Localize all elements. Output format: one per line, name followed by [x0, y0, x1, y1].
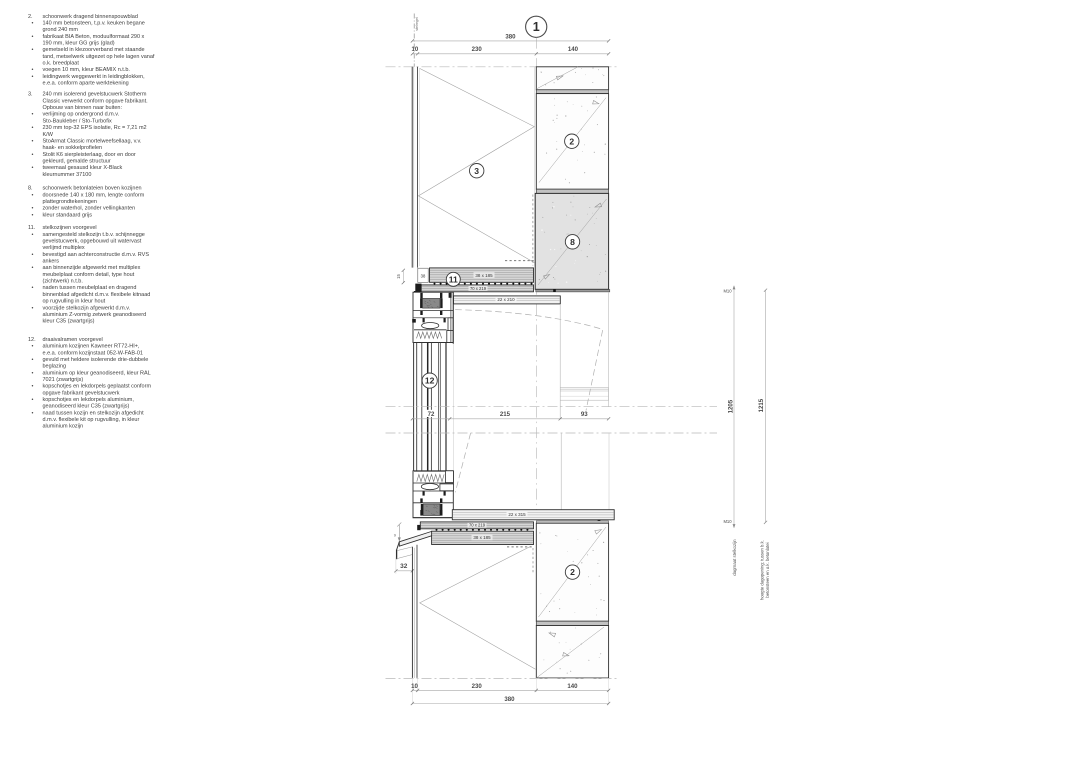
svg-text:•: •	[32, 206, 34, 212]
svg-text:10: 10	[411, 683, 418, 690]
svg-text:verlijming op ondergrond d.m.v: verlijming op ondergrond d.m.v.	[43, 112, 120, 118]
svg-text:d.m.v. flexibele kit op rugvul: d.m.v. flexibele kit op rugvulling, in k…	[43, 417, 140, 423]
svg-text:•: •	[32, 285, 34, 291]
svg-text:aan binnenzijde afgewerkt met: aan binnenzijde afgewerkt met multiplex	[43, 265, 141, 271]
svg-text:•: •	[32, 252, 34, 258]
svg-text:70 x 219: 70 x 219	[470, 286, 487, 291]
svg-text:Stolit K6 sierpleisterlaag, do: Stolit K6 sierpleisterlaag, door en door	[43, 152, 136, 158]
svg-text:15: 15	[396, 274, 401, 279]
svg-text:stelkozijnen voorgevel: stelkozijnen voorgevel	[43, 225, 97, 231]
svg-text:•: •	[32, 232, 34, 238]
svg-text:schoonwerk betonlateien boven: schoonwerk betonlateien boven kozijnen	[43, 186, 142, 192]
svg-text:32: 32	[400, 563, 408, 570]
svg-text:binnenblad afgedicht d.m.v. fl: binnenblad afgedicht d.m.v. flexibele ki…	[43, 292, 151, 298]
svg-text:•: •	[32, 384, 34, 390]
svg-text:1: 1	[533, 20, 540, 34]
svg-text:aluminium op kleur geanodiseer: aluminium op kleur geanodiseerd, kleur R…	[43, 370, 151, 376]
svg-text:fabrikaat BIA Beton, moduulfor: fabrikaat BIA Beton, moduulformaat 290 x	[43, 34, 145, 40]
svg-text:8.: 8.	[28, 186, 33, 192]
svg-text:kleur C35 (zwartgrijs): kleur C35 (zwartgrijs)	[43, 319, 95, 325]
svg-text:380: 380	[504, 696, 515, 703]
svg-text:230: 230	[472, 683, 483, 690]
svg-text:dagmaat stelkozijn: dagmaat stelkozijn	[732, 539, 737, 576]
svg-text:gemetseld in klezoorverband me: gemetseld in klezoorverband met staande	[43, 47, 145, 53]
svg-text:•: •	[32, 74, 34, 80]
svg-text:kleurnummer 37100: kleurnummer 37100	[43, 172, 92, 178]
svg-text:haak- en sokkelprofielen: haak- en sokkelprofielen	[43, 145, 103, 151]
svg-text:•: •	[32, 305, 34, 311]
svg-text:geanodiseerd kleur C35 (zwartg: geanodiseerd kleur C35 (zwartgrijs)	[43, 404, 130, 410]
svg-text:2: 2	[570, 567, 575, 577]
svg-text:1215: 1215	[758, 398, 765, 412]
svg-text:K/W: K/W	[43, 132, 54, 138]
svg-text:kopschotjes en lekdorpels gepl: kopschotjes en lekdorpels geplaatst conf…	[43, 384, 152, 390]
svg-text:•: •	[32, 265, 34, 271]
svg-text:stelregel: stelregel	[415, 17, 419, 31]
svg-text:opgave fabrikant gevelstucwerk: opgave fabrikant gevelstucwerk	[43, 390, 120, 396]
svg-text:Sto-Baukleber / Sto-Turbofix: Sto-Baukleber / Sto-Turbofix	[43, 118, 112, 124]
svg-text:22 x 315: 22 x 315	[508, 512, 526, 517]
svg-text:70 x 219: 70 x 219	[469, 523, 486, 528]
svg-text:gevuld met heldere isolerende: gevuld met heldere isolerende drie-dubbe…	[43, 357, 149, 363]
svg-text:•: •	[32, 212, 34, 218]
svg-text:aluminium kozijnen Kawneer RT7: aluminium kozijnen Kawneer RT72-HI+,	[43, 344, 140, 350]
svg-text:12.: 12.	[28, 337, 36, 343]
svg-text:•: •	[32, 47, 34, 53]
svg-text:7021 (zwartgrijs): 7021 (zwartgrijs)	[43, 377, 84, 383]
svg-text:8: 8	[570, 237, 575, 247]
svg-text:38 x 185: 38 x 185	[473, 535, 491, 540]
svg-text:11: 11	[449, 274, 458, 284]
svg-text:e.e.a. conform aparte werkteke: e.e.a. conform aparte werktekening	[43, 81, 129, 87]
svg-text:•: •	[32, 370, 34, 376]
svg-text:72: 72	[428, 411, 435, 418]
svg-text:2: 2	[569, 136, 574, 146]
svg-text:•: •	[32, 20, 34, 26]
svg-text:verlijmd multiplex: verlijmd multiplex	[43, 245, 85, 251]
svg-text:M10: M10	[723, 519, 732, 524]
svg-text:140 mm betonsteen, t.p.v. keuk: 140 mm betonsteen, t.p.v. keuken begane	[43, 20, 145, 26]
svg-text:gevelstucwerk, opgebouwd uit w: gevelstucwerk, opgebouwd uit watervast	[43, 238, 142, 244]
svg-text:•: •	[32, 397, 34, 403]
svg-text:215: 215	[500, 411, 511, 418]
svg-text:38 x 185: 38 x 185	[475, 273, 493, 278]
svg-text:•: •	[32, 165, 34, 171]
svg-text:leidingwerk weggewerkt in leid: leidingwerk weggewerkt in leidingblokken…	[43, 74, 146, 80]
svg-text:•: •	[32, 34, 34, 40]
svg-text:Opbouw van binnen naar buiten:: Opbouw van binnen naar buiten:	[43, 105, 123, 111]
svg-text:3: 3	[474, 166, 479, 176]
svg-text:11.: 11.	[28, 225, 36, 231]
svg-text:aluminium Z-vormig zetwerk gea: aluminium Z-vormig zetwerk geanodiseerd	[43, 312, 147, 318]
svg-text:zonder waterhol, zonder vellin: zonder waterhol, zonder vellingkanten	[43, 206, 136, 212]
svg-text:beglazing: beglazing	[43, 364, 67, 370]
svg-text:plattegrondtekeningen: plattegrondtekeningen	[43, 199, 97, 205]
svg-text:tand, metselwerk uitgezet op h: tand, metselwerk uitgezet op hele lagen …	[43, 54, 155, 60]
svg-text:2.: 2.	[28, 14, 33, 20]
svg-text:140: 140	[568, 46, 579, 53]
svg-text:380: 380	[505, 33, 516, 40]
svg-text:•: •	[32, 67, 34, 73]
svg-text:3.: 3.	[28, 92, 33, 98]
svg-text:schoonwerk dragend binnenspouw: schoonwerk dragend binnenspouwblad	[43, 14, 138, 20]
svg-text:kleur standaard grijs: kleur standaard grijs	[43, 212, 93, 218]
svg-text:kopschotjes en lekdorpels alum: kopschotjes en lekdorpels aluminium,	[43, 397, 135, 403]
svg-text:•: •	[32, 192, 34, 198]
svg-text:voorzijde stelkozijn afgewerkt: voorzijde stelkozijn afgewerkt d.m.v.	[43, 305, 131, 311]
svg-text:voegen 10 mm, kleur BEAMIX n.t: voegen 10 mm, kleur BEAMIX n.t.b.	[43, 67, 131, 73]
svg-text:op rugvulling in kleur hout: op rugvulling in kleur hout	[43, 299, 106, 305]
svg-text:draaivalramen voorgevel: draaivalramen voorgevel	[43, 337, 103, 343]
svg-text:aluminium kozijn: aluminium kozijn	[43, 424, 84, 430]
svg-text:190 mm, kleur GG grijs (glad): 190 mm, kleur GG grijs (glad)	[43, 41, 115, 47]
svg-text:93: 93	[581, 411, 588, 418]
svg-text:meubelplaat conform detail, ty: meubelplaat conform detail, type hout	[43, 272, 135, 278]
svg-text:gekleurd, gemalde structuur: gekleurd, gemalde structuur	[43, 159, 111, 165]
svg-text:samengesteld stelkozijn t.b.v.: samengesteld stelkozijn t.b.v. schijnneg…	[43, 232, 145, 238]
svg-text:•: •	[32, 357, 34, 363]
svg-text:e.e.a. conform kozijnstaat 052: e.e.a. conform kozijnstaat 052-W-FAB-01	[43, 350, 143, 356]
svg-text:10: 10	[412, 46, 419, 53]
svg-text:bevestigd aan achterconstructi: bevestigd aan achterconstructie d.m.v. R…	[43, 252, 150, 258]
svg-text:22 x 210: 22 x 210	[497, 297, 515, 302]
svg-text:StoArmat Classic mortelweefsel: StoArmat Classic mortelweefsellaag, v.v.	[43, 138, 142, 144]
svg-text:betonsteen en o.k. betonlatei: betonsteen en o.k. betonlatei	[765, 542, 770, 597]
svg-text:grond 240 mm: grond 240 mm	[43, 27, 79, 33]
svg-text:140: 140	[567, 683, 578, 690]
svg-text:doorsnede 140 x 180 mm, lengte: doorsnede 140 x 180 mm, lengte conform	[43, 192, 145, 198]
svg-text:tweemaal gesausd kleur X-Black: tweemaal gesausd kleur X-Black	[43, 165, 123, 171]
svg-text:o.k. breedplaat: o.k. breedplaat	[43, 61, 80, 67]
svg-text:•: •	[32, 125, 34, 131]
svg-text:naden tussen meubelplaat en dr: naden tussen meubelplaat en dragend	[43, 285, 137, 291]
svg-text:M10: M10	[723, 289, 732, 294]
svg-text:•: •	[32, 344, 34, 350]
svg-text:240 mm isolerend gevelstucwerk: 240 mm isolerend gevelstucwerk Stotherm	[43, 92, 147, 98]
svg-text:230 mm top-32 EPS isolatie, Rc: 230 mm top-32 EPS isolatie, Rc = 7,21 m2	[43, 125, 147, 131]
svg-text:•: •	[32, 152, 34, 158]
svg-text:•: •	[32, 112, 34, 118]
svg-text:Classic verwerkt conform opgav: Classic verwerkt conform opgave fabrikan…	[43, 98, 149, 104]
svg-text:•: •	[32, 410, 34, 416]
svg-text:38: 38	[421, 273, 426, 278]
svg-text:230: 230	[472, 46, 483, 53]
svg-text:1205: 1205	[728, 399, 735, 413]
svg-text:•: •	[32, 138, 34, 144]
svg-text:ankers: ankers	[43, 259, 60, 265]
svg-text:12: 12	[425, 376, 435, 386]
svg-text:(zichtwerk) n.t.b.: (zichtwerk) n.t.b.	[43, 279, 84, 285]
svg-text:naad tussen kozijn en stelkozi: naad tussen kozijn en stelkozijn afgedic…	[43, 410, 145, 416]
